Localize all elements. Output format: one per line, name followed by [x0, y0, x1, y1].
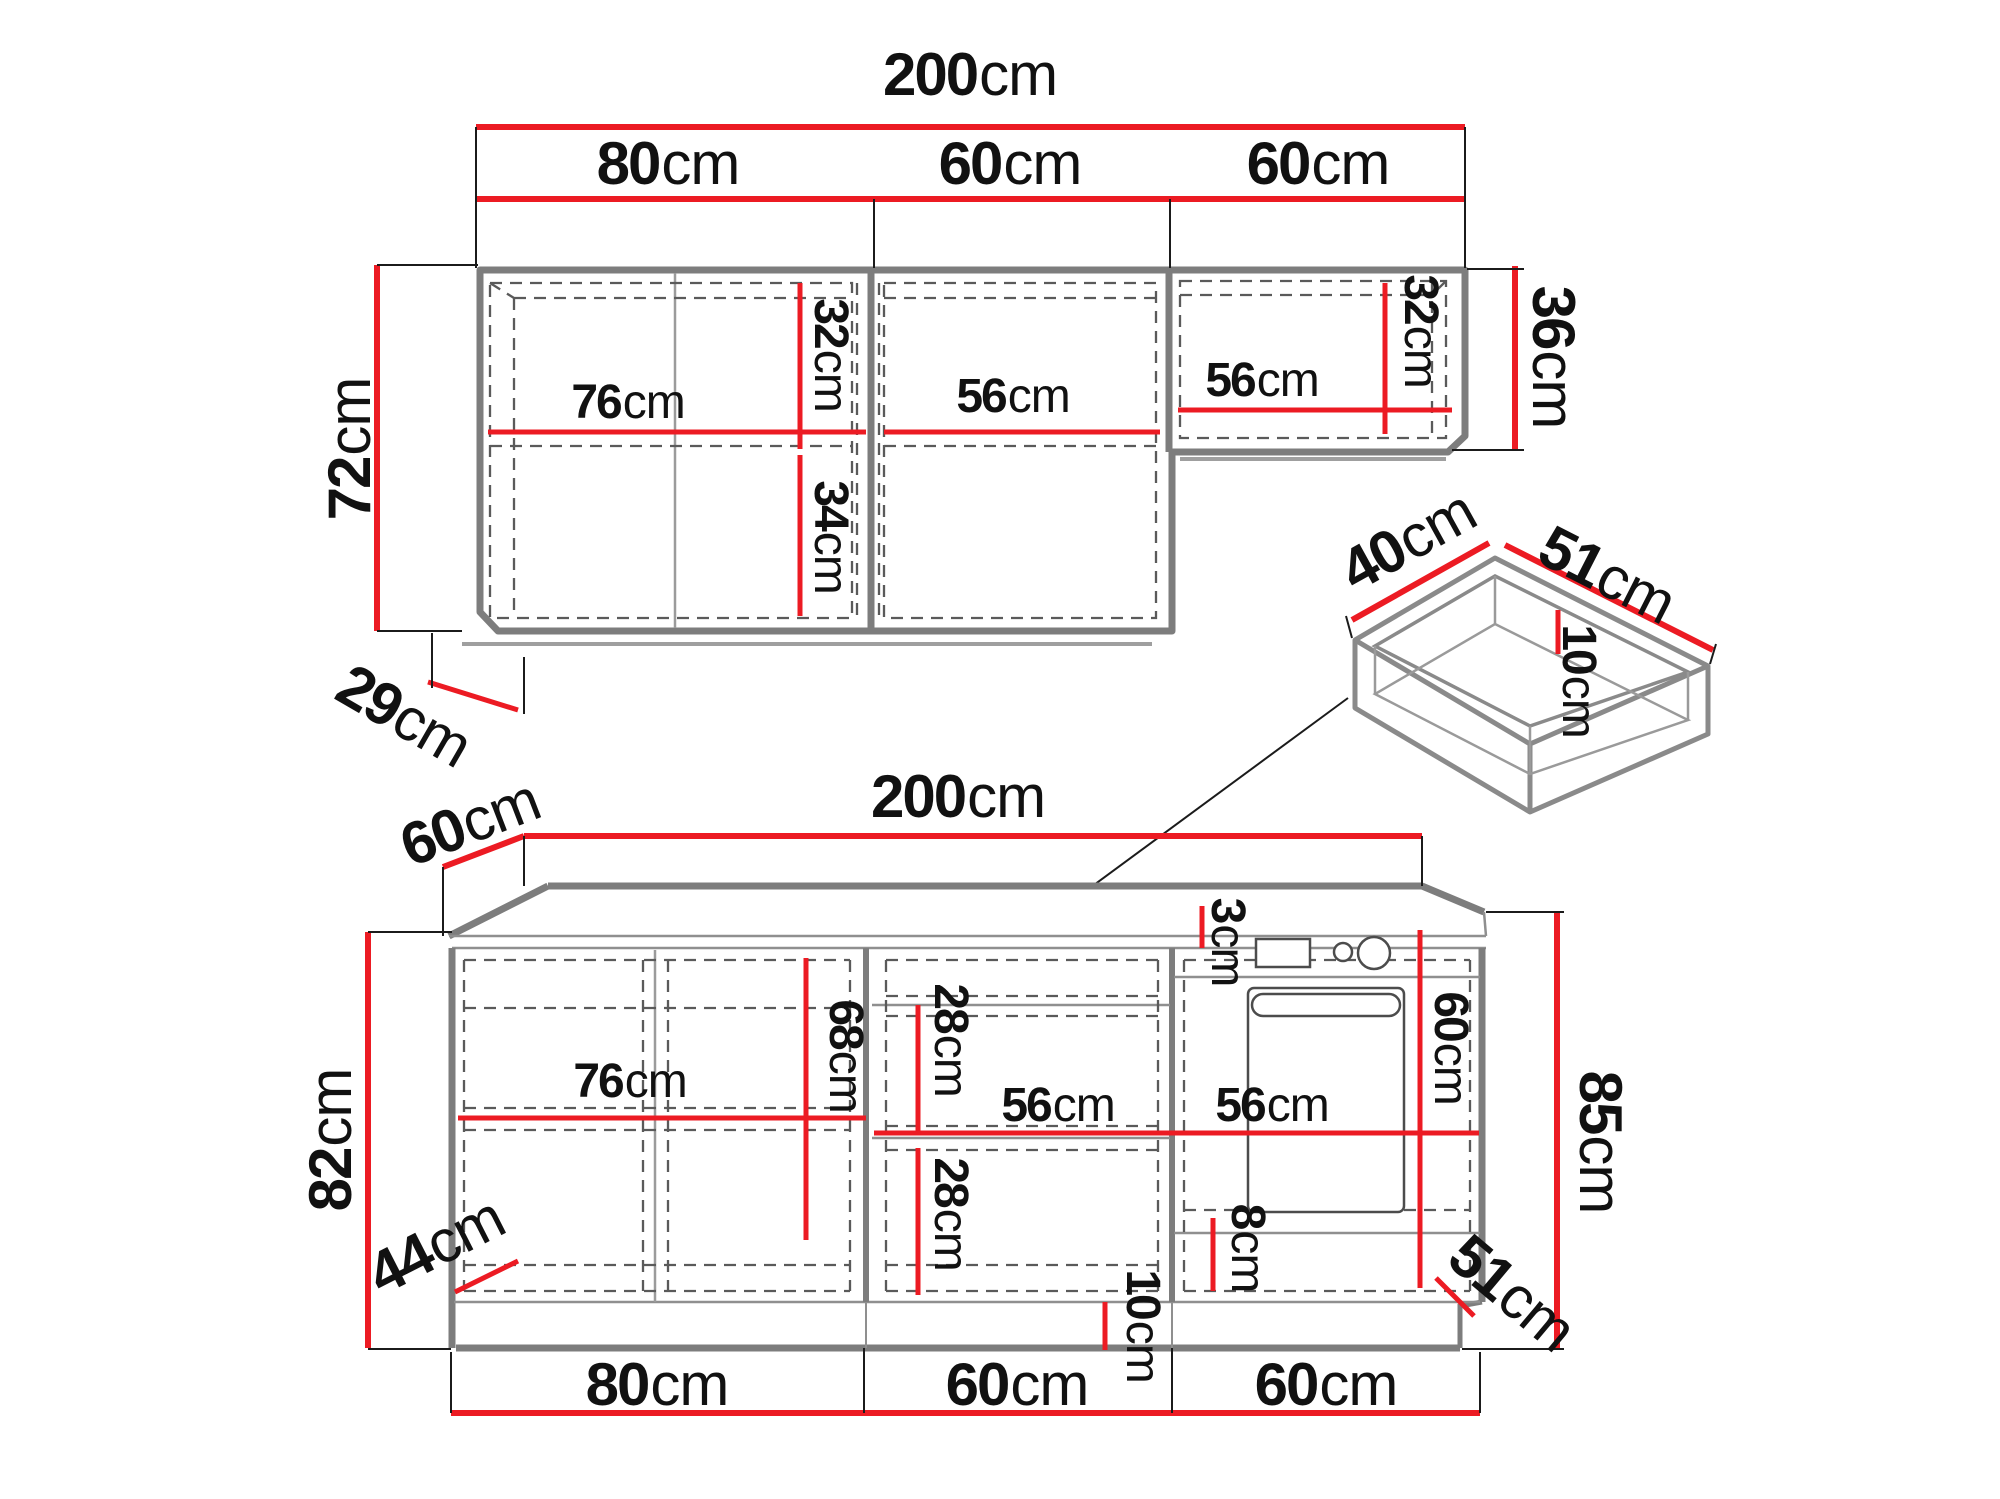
dim-base-inner-width-76: 76cm — [573, 1058, 686, 1106]
wall-cabinet-drawing — [377, 127, 1524, 714]
dim-wall-section-80: 80cm — [597, 134, 740, 194]
diagram-artwork — [0, 0, 2000, 1499]
dim-base-total-height-85: 85cm — [1570, 1071, 1630, 1214]
dim-wall-inner-height-32: 32cm — [806, 298, 854, 411]
oven-knob-large — [1358, 937, 1390, 969]
dim-drawer-depth-10: 10cm — [1554, 624, 1602, 737]
dim-wall-section-60b: 60cm — [1247, 134, 1390, 194]
oven-display — [1256, 939, 1310, 967]
dim-base-total-width: 200cm — [871, 767, 1045, 827]
dim-base-bottom-80: 80cm — [586, 1355, 729, 1415]
diagram-canvas: 200cm 80cm 60cm 60cm 72cm 76cm 32cm 34cm… — [0, 0, 2000, 1499]
countertop-fill — [449, 886, 1486, 948]
base-cabinet-drawing — [368, 836, 1564, 1413]
oven-knob-small — [1334, 943, 1352, 961]
dim-wall-inner-width-76: 76cm — [571, 379, 684, 427]
dim-wall-height-36: 36cm — [1523, 286, 1583, 429]
dim-wall-section-60a: 60cm — [939, 134, 1082, 194]
dim-wall-height-72: 72cm — [320, 378, 380, 521]
oven-handle — [1252, 994, 1400, 1016]
dim-base-countertop-3: 3cm — [1203, 898, 1251, 987]
dim-base-bottom-60b: 60cm — [1255, 1355, 1398, 1415]
dim-base-inner-height-68: 68cm — [821, 999, 869, 1112]
dim-wall-inner-width-56-right: 56cm — [1205, 357, 1318, 405]
dim-base-oven-height-60: 60cm — [1426, 991, 1474, 1104]
dim-base-drawer-height-28-top: 28cm — [926, 983, 974, 1096]
dim-base-drawer-height-28-bottom: 28cm — [926, 1157, 974, 1270]
dim-wall-total-width: 200cm — [883, 45, 1057, 105]
dim-base-inner-width-56-mid: 56cm — [1001, 1082, 1114, 1130]
wall-cabinet-outline — [480, 270, 1465, 631]
dim-base-bottom-60a: 60cm — [946, 1355, 1089, 1415]
dim-base-inner-width-56-right: 56cm — [1215, 1082, 1328, 1130]
dim-base-body-height-82: 82cm — [301, 1069, 361, 1212]
dim-base-gap-8: 8cm — [1223, 1204, 1271, 1293]
dim-base-plinth-10: 10cm — [1118, 1269, 1166, 1382]
dim-wall-inner-height-32-right: 32cm — [1396, 274, 1444, 387]
dim-wall-inner-width-56-mid: 56cm — [956, 373, 1069, 421]
dim-wall-inner-height-34: 34cm — [806, 480, 854, 593]
